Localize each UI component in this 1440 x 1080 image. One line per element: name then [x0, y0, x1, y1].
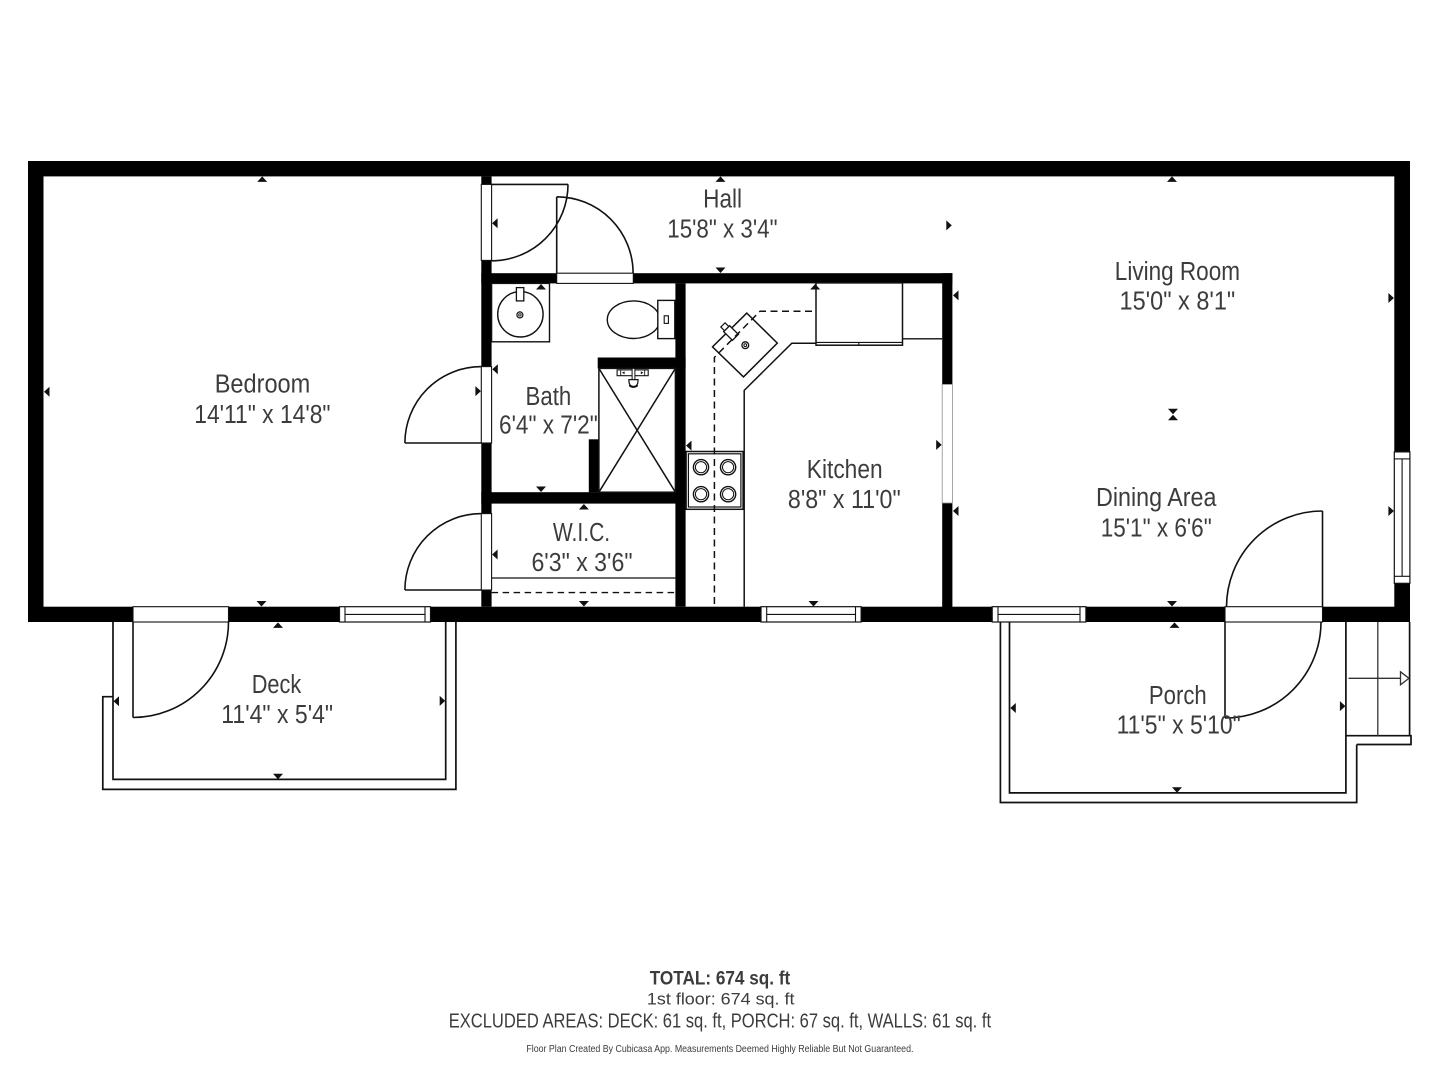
svg-text:Bath: Bath [526, 383, 572, 411]
svg-text:W.I.C.: W.I.C. [553, 519, 610, 547]
svg-text:Hall: Hall [703, 186, 742, 214]
svg-text:8'8" x 11'0": 8'8" x 11'0" [788, 486, 901, 514]
svg-text:6'3" x 3'6": 6'3" x 3'6" [531, 549, 632, 577]
svg-text:11'4" x 5'4": 11'4" x 5'4" [221, 701, 333, 729]
svg-text:Kitchen: Kitchen [807, 456, 883, 484]
svg-text:1st floor: 674 sq. ft: 1st floor: 674 sq. ft [647, 990, 795, 1009]
svg-text:15'1" x 6'6": 15'1" x 6'6" [1101, 514, 1212, 542]
svg-text:14'11" x 14'8": 14'11" x 14'8" [194, 401, 330, 429]
svg-text:Deck: Deck [252, 671, 302, 699]
svg-text:Porch: Porch [1149, 682, 1207, 710]
svg-text:Bedroom: Bedroom [215, 371, 311, 399]
svg-text:11'5" x 5'10": 11'5" x 5'10" [1117, 711, 1241, 739]
svg-text:Floor Plan Created By Cubicasa: Floor Plan Created By Cubicasa App. Meas… [526, 1044, 913, 1055]
svg-text:Living Room: Living Room [1115, 258, 1240, 286]
svg-text:EXCLUDED AREAS: DECK: 61 sq. f: EXCLUDED AREAS: DECK: 61 sq. ft, PORCH: … [449, 1010, 992, 1032]
svg-text:Dining Area: Dining Area [1096, 484, 1217, 512]
svg-text:6'4" x 7'2": 6'4" x 7'2" [499, 411, 598, 439]
svg-text:15'8" x 3'4": 15'8" x 3'4" [667, 216, 777, 244]
svg-text:TOTAL: 674 sq. ft: TOTAL: 674 sq. ft [650, 969, 791, 990]
svg-text:15'0" x 8'1": 15'0" x 8'1" [1120, 287, 1236, 315]
